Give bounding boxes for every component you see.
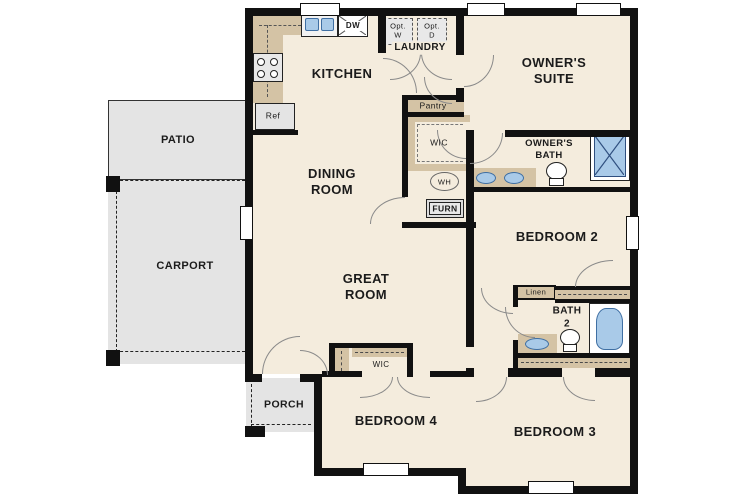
window-dining xyxy=(240,206,253,240)
porch-dashed-edge-left xyxy=(251,384,252,428)
wic-owner-wall-bottom xyxy=(408,164,470,171)
porch-dashed-edge-bottom xyxy=(251,424,311,425)
carport-post-bottom xyxy=(106,350,120,366)
porch-label: PORCH xyxy=(264,398,304,411)
great-room-label: GREAT ROOM xyxy=(343,271,390,304)
owners-bath-toilet-base xyxy=(549,178,564,186)
wall xyxy=(245,374,262,382)
laundry-label: LAUNDRY xyxy=(392,42,447,55)
bathtub xyxy=(596,308,623,350)
stove-burner xyxy=(270,70,278,78)
wall-column-left xyxy=(402,95,408,197)
wall-laundry-left xyxy=(378,16,386,53)
owners-bath-sink-left xyxy=(476,172,496,184)
wic-owner-label: WIC xyxy=(430,138,448,149)
carport-post-top xyxy=(106,176,120,192)
wall-laundry-right xyxy=(456,16,464,55)
stove-burner xyxy=(270,58,278,66)
linen-label: Linen xyxy=(526,287,546,296)
bath2-toilet-base xyxy=(563,344,577,352)
wall-bedroom3-top2 xyxy=(595,368,630,377)
pantry-label: Pantry xyxy=(420,101,447,112)
furnace-label: FURN xyxy=(432,204,457,215)
owners-bath-sink-right xyxy=(504,172,524,184)
wall-exterior-left xyxy=(245,8,253,382)
owners-bath-label: OWNER'S BATH xyxy=(525,138,573,162)
porch-post xyxy=(245,426,265,437)
kitchen-sink-basin-right xyxy=(321,18,334,31)
optional-dryer-label: Opt. D xyxy=(424,22,440,39)
floor-plan: DW Ref Opt. W Opt. D WH FURN xyxy=(0,0,750,500)
window-bedroom4 xyxy=(363,463,409,476)
dining-room-label: DINING ROOM xyxy=(308,166,356,199)
wall-owners-bath-top xyxy=(505,130,630,137)
wall-kitchen-stub xyxy=(253,130,298,135)
wall xyxy=(466,368,474,377)
wall-vestibule-top xyxy=(329,343,413,348)
wall-wic4-right xyxy=(407,343,413,377)
wall-exterior-right xyxy=(630,8,638,494)
bedroom3-closet-shelf xyxy=(518,358,630,368)
bedroom2-label: BEDROOM 2 xyxy=(516,229,598,245)
patio-label: PATIO xyxy=(161,134,195,148)
carport-label: CARPORT xyxy=(156,260,213,274)
bath2-label: BATH 2 xyxy=(553,306,582,331)
owners-suite-label: OWNER'S SUITE xyxy=(522,55,586,88)
bedroom4-label: BEDROOM 4 xyxy=(355,413,437,429)
optional-washer-label: Opt. W xyxy=(390,22,406,39)
wall-bedroom4-top2 xyxy=(430,371,466,377)
window-hall xyxy=(467,3,505,16)
kitchen-sink-basin-left xyxy=(305,18,319,31)
carport-dashed-edge-top xyxy=(115,180,245,181)
bedroom3-label: BEDROOM 3 xyxy=(514,424,596,440)
stove xyxy=(253,53,283,82)
wall-utility-bottom xyxy=(402,222,476,228)
wall-bedroom4-top1 xyxy=(322,371,362,377)
stove-burner xyxy=(257,58,265,66)
wall xyxy=(513,285,518,307)
refrigerator-label: Ref xyxy=(266,111,280,122)
wic-bedroom4-label: WIC xyxy=(373,360,390,370)
wall-pantry-bottom xyxy=(402,112,464,117)
bath2-sink xyxy=(525,338,549,350)
window-kitchen xyxy=(300,3,340,16)
stove-burner xyxy=(257,70,265,78)
shower xyxy=(594,135,626,177)
bedroom2-closet-shelf xyxy=(555,290,630,299)
wic-owner-wall-left xyxy=(408,115,415,171)
kitchen-label: KITCHEN xyxy=(312,66,373,82)
wall-bath2-bottom xyxy=(518,353,630,358)
counter-dashed-line xyxy=(259,25,301,26)
carport-dashed-edge-left xyxy=(116,186,117,352)
wall-bedroom3-top xyxy=(508,368,562,377)
window-bedroom3 xyxy=(528,481,574,494)
water-heater-label: WH xyxy=(438,177,451,186)
window-bedroom2 xyxy=(626,216,639,250)
wic-bedroom4-shelf xyxy=(352,348,407,357)
window-owners-suite xyxy=(576,3,621,16)
wall-owners-bath-bottom xyxy=(466,187,630,192)
carport-dashed-edge-bottom xyxy=(115,351,245,352)
dishwasher-label: DW xyxy=(345,21,361,31)
wall-bedroom4-left xyxy=(314,374,322,476)
